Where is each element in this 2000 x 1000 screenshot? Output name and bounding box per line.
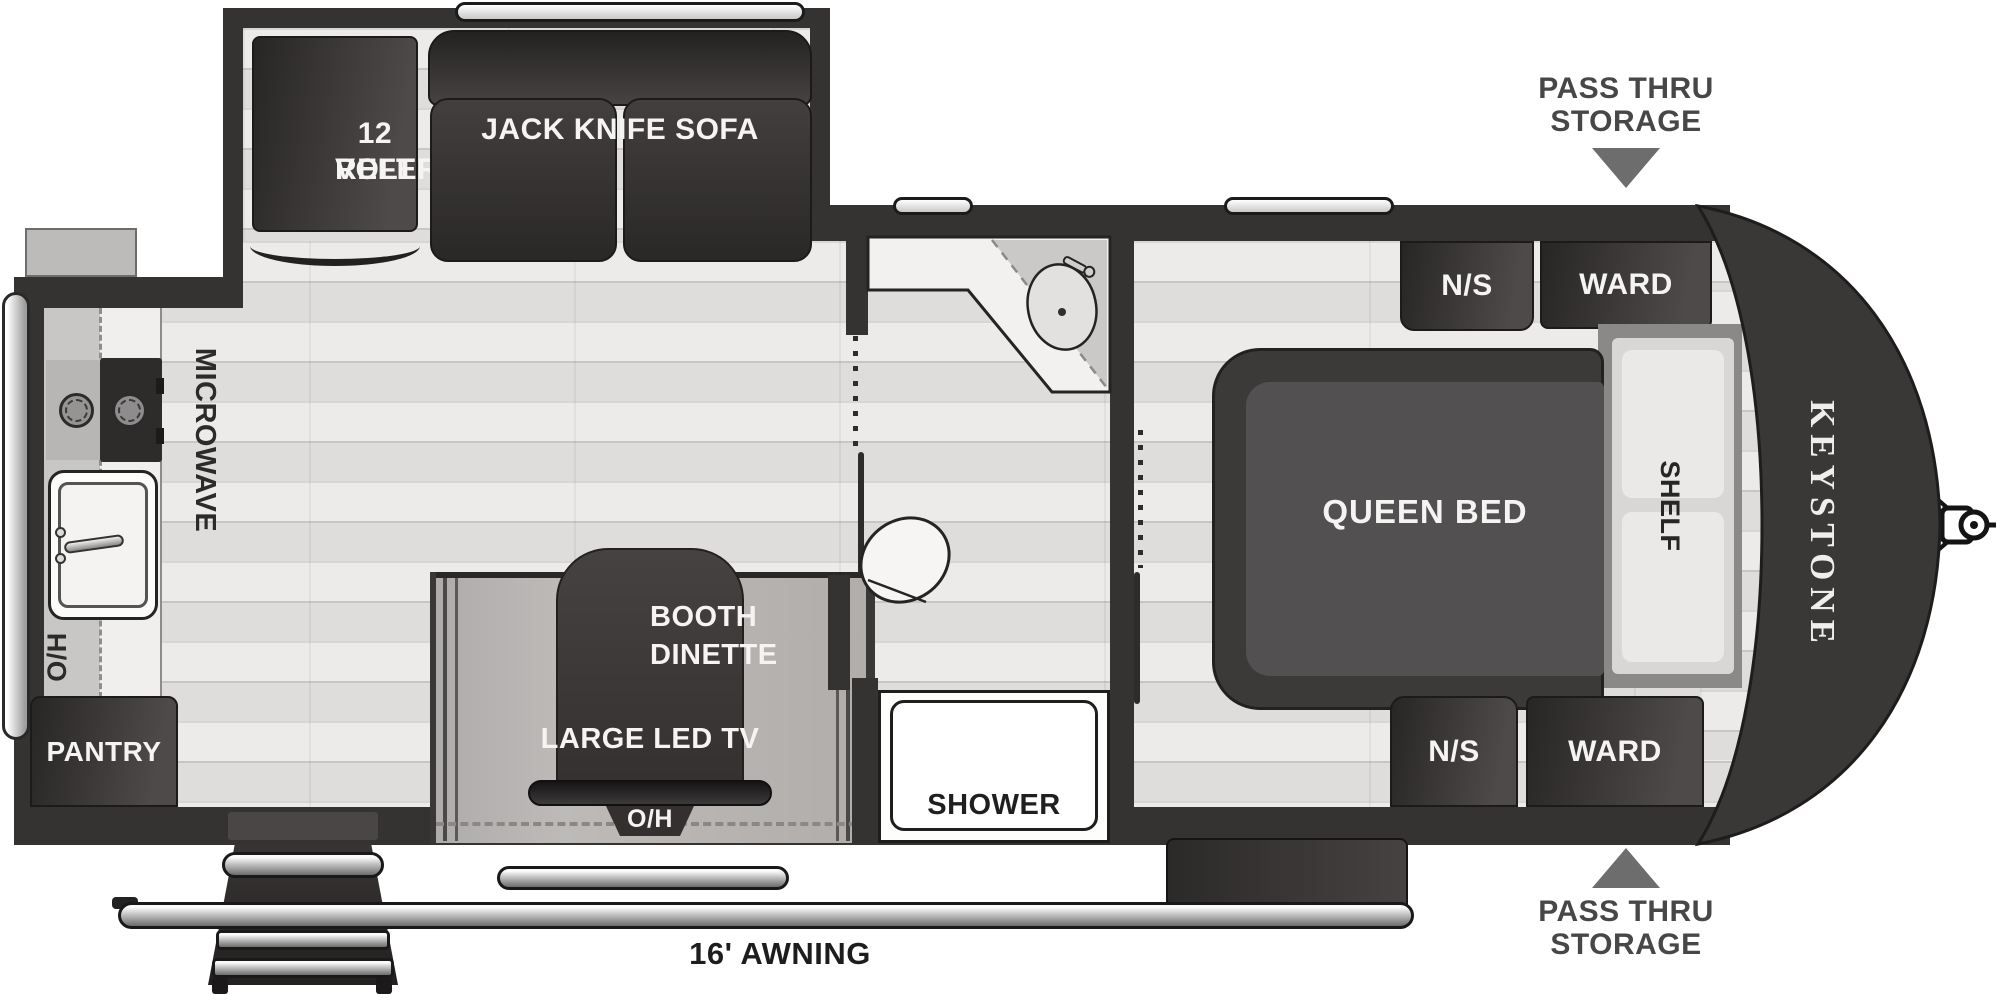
pass-thru-storage-label-bottom: PASS THRU	[1516, 895, 1736, 929]
pass-thru-storage-label-top: PASS THRU	[1516, 72, 1736, 106]
step-tread	[222, 852, 384, 878]
safety-chain-ring-icon	[1913, 488, 1933, 508]
step-foot	[212, 978, 228, 994]
pass-thru-storage-label-top: STORAGE	[1516, 105, 1736, 139]
arrow-up-icon	[1592, 848, 1660, 888]
awning-label: 16' AWNING	[630, 934, 930, 974]
floorplan-canvas: 12 VOLTREFER JACK KNIFE SOFA O/H PANTRY …	[0, 0, 2000, 1000]
step-tread	[212, 958, 394, 978]
grab-rail	[497, 866, 789, 890]
arrow-down-icon	[1592, 148, 1660, 188]
pass-thru-storage-label-bottom: STORAGE	[1516, 928, 1736, 962]
step-tread	[216, 930, 390, 950]
step-foot	[376, 978, 392, 994]
awning-rail	[118, 902, 1414, 929]
brand-label: KEYSTONE	[1802, 345, 1842, 705]
